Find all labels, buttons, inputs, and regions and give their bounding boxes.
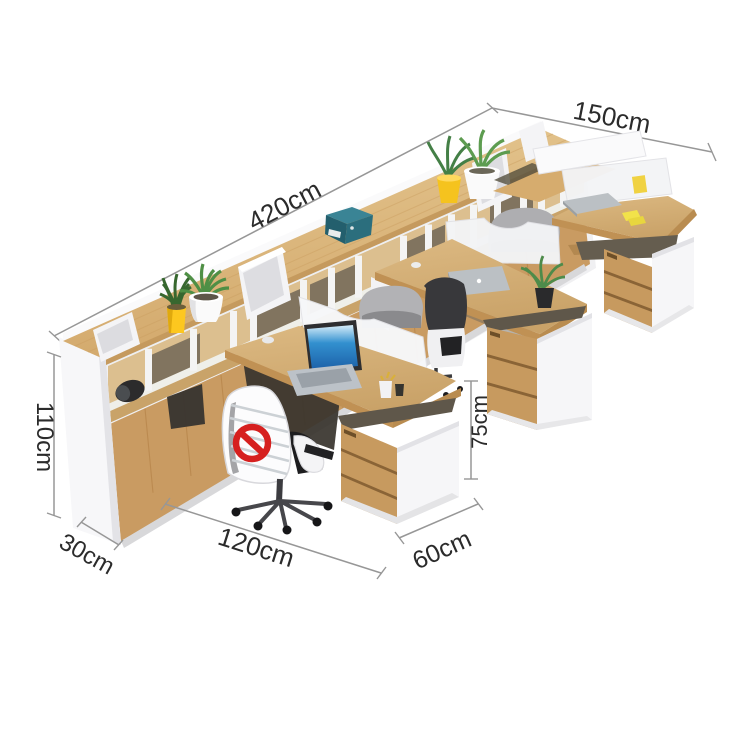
svg-text:75cm: 75cm (467, 395, 492, 449)
svg-text:110cm: 110cm (31, 402, 58, 472)
